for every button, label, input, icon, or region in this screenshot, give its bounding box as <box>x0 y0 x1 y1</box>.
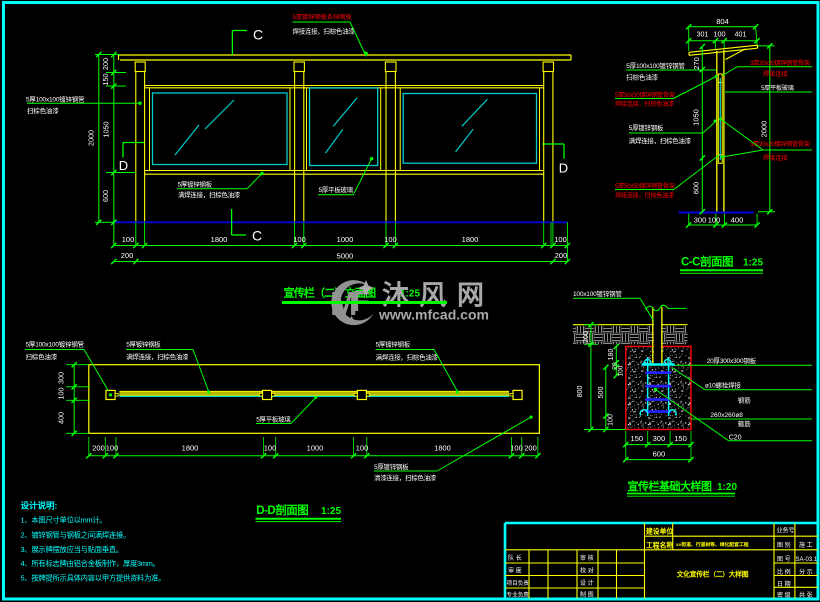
svg-text:300: 300 <box>57 372 66 384</box>
svg-text:200: 200 <box>101 58 110 70</box>
svg-text:C: C <box>252 228 262 244</box>
svg-text:5厚50x50镀锌钢管骨架: 5厚50x50镀锌钢管骨架 <box>615 91 675 99</box>
svg-text:4、所有标志牌由铝合金板制作，厚度3mm。: 4、所有标志牌由铝合金板制作，厚度3mm。 <box>21 559 160 568</box>
svg-text:100x100镀锌钢管: 100x100镀锌钢管 <box>573 289 622 298</box>
svg-text:D: D <box>119 158 128 173</box>
svg-text:150: 150 <box>674 434 687 443</box>
svg-text:5厚100x100镀锌钢管: 5厚100x100镀锌钢管 <box>626 61 685 70</box>
svg-text:100: 100 <box>510 444 523 453</box>
svg-text:180: 180 <box>608 349 615 361</box>
svg-text:满焊连接，扫棕色油漆: 满焊连接，扫棕色油漆 <box>178 190 241 199</box>
svg-text:5000: 5000 <box>337 252 354 261</box>
svg-text:钢筋: 钢筋 <box>738 395 752 404</box>
svg-text:150: 150 <box>631 434 644 443</box>
svg-text:1000: 1000 <box>337 235 354 244</box>
svg-text:200: 200 <box>555 251 568 260</box>
svg-text:5厚平板玻璃: 5厚平板玻璃 <box>319 185 354 194</box>
svg-text:SA-03.1: SA-03.1 <box>796 557 818 563</box>
svg-text:100: 100 <box>608 414 615 426</box>
svg-text:804: 804 <box>716 17 729 26</box>
svg-text:焊接连接，扫棕色油漆: 焊接连接，扫棕色油漆 <box>293 27 356 36</box>
svg-text:比 例: 比 例 <box>777 568 791 576</box>
svg-text:1:25: 1:25 <box>743 258 763 269</box>
svg-text:清漆连接，扫棕色油漆: 清漆连接，扫棕色油漆 <box>374 473 437 482</box>
svg-text:专业负责: 专业负责 <box>507 591 530 599</box>
svg-text:2000: 2000 <box>87 130 96 146</box>
svg-text:1800: 1800 <box>434 444 451 453</box>
svg-text:审 度: 审 度 <box>508 567 522 575</box>
svg-text:5厚100x100镀锌钢管: 5厚100x100镀锌钢管 <box>26 340 85 349</box>
svg-text:扫棕色油漆: 扫棕色油漆 <box>26 352 58 361</box>
svg-text:600: 600 <box>653 449 666 458</box>
svg-text:1000: 1000 <box>307 444 324 453</box>
svg-text:C-C剖面图: C-C剖面图 <box>681 255 733 269</box>
svg-text:校 对: 校 对 <box>580 567 594 575</box>
svg-text:设计说明:: 设计说明: <box>21 501 58 511</box>
svg-text:401: 401 <box>735 30 747 39</box>
svg-text:5厚镀锌钢板: 5厚镀锌钢板 <box>374 462 409 471</box>
svg-text:设 计: 设 计 <box>580 579 594 587</box>
svg-text:100: 100 <box>554 235 567 244</box>
svg-text:100: 100 <box>708 215 721 224</box>
svg-text:制 图: 制 图 <box>580 591 594 599</box>
svg-text:项目负责: 项目负责 <box>507 579 530 587</box>
svg-text:满焊连接，扫棕色油漆: 满焊连接，扫棕色油漆 <box>629 136 692 145</box>
svg-text:焊接连接，扫棕色油漆: 焊接连接，扫棕色油漆 <box>615 100 674 108</box>
svg-text:扫棕色油漆: 扫棕色油漆 <box>27 106 59 115</box>
svg-text:图 号: 图 号 <box>777 556 791 563</box>
svg-text:共 张: 共 张 <box>799 591 813 599</box>
svg-text:600: 600 <box>692 182 701 195</box>
svg-text:ø10螺栓焊接: ø10螺栓焊接 <box>705 381 742 390</box>
svg-text:5厚100x100镀锌钢管: 5厚100x100镀锌钢管 <box>26 95 85 104</box>
svg-text:200: 200 <box>92 444 105 453</box>
svg-text:3厚20x20镀锌钢管骨架: 3厚20x20镀锌钢管骨架 <box>750 59 810 67</box>
svg-text:5厚镀锌钢板: 5厚镀锌钢板 <box>376 340 411 349</box>
svg-text:270: 270 <box>692 57 701 70</box>
svg-text:扫棕色油漆: 扫棕色油漆 <box>626 73 658 82</box>
svg-text:100: 100 <box>356 444 369 453</box>
svg-text:工程名称: 工程名称 <box>646 541 673 550</box>
svg-text:C20: C20 <box>729 435 742 442</box>
svg-text:5厚平板玻璃: 5厚平板玻璃 <box>256 415 291 424</box>
svg-text:www.mfcad.com: www.mfcad.com <box>378 307 489 323</box>
svg-text:业务号: 业务号 <box>777 527 795 535</box>
svg-text:301: 301 <box>697 30 709 39</box>
svg-text:D-D剖面图: D-D剖面图 <box>256 503 308 517</box>
svg-text:满焊连接，扫棕色油漆: 满焊连接，扫棕色油漆 <box>126 352 189 361</box>
svg-text:100: 100 <box>618 365 625 376</box>
svg-text:图 别: 图 别 <box>777 541 791 549</box>
svg-text:100: 100 <box>714 30 726 39</box>
svg-text:200: 200 <box>583 331 590 343</box>
svg-text:1800: 1800 <box>182 444 199 453</box>
svg-text:200: 200 <box>121 251 134 260</box>
svg-text:100: 100 <box>264 444 277 453</box>
svg-text:100: 100 <box>122 235 135 244</box>
svg-text:150: 150 <box>101 74 110 86</box>
svg-text:焊接连接，扫棕色油漆: 焊接连接，扫棕色油漆 <box>615 192 674 200</box>
svg-text:200: 200 <box>524 444 537 453</box>
svg-text:xx街道、行道树等、绿化配套工程: xx街道、行道树等、绿化配套工程 <box>676 541 749 548</box>
svg-text:20厚300x300钢板: 20厚300x300钢板 <box>707 356 757 365</box>
svg-text:500: 500 <box>598 387 605 399</box>
svg-text:建设单位: 建设单位 <box>645 527 673 536</box>
svg-text:5厚平板玻璃: 5厚平板玻璃 <box>761 84 794 92</box>
svg-text:C: C <box>253 27 263 43</box>
svg-text:5厚镀锌钢板: 5厚镀锌钢板 <box>126 340 161 349</box>
svg-text:焊接连接: 焊接连接 <box>763 154 788 162</box>
svg-text:100: 100 <box>106 444 119 453</box>
svg-text:日 期: 日 期 <box>777 580 791 588</box>
svg-text:100: 100 <box>293 235 306 244</box>
svg-text:5厚50x50镀锌钢管骨架: 5厚50x50镀锌钢管骨架 <box>615 182 675 190</box>
svg-text:5厚镀锌钢板: 5厚镀锌钢板 <box>629 123 664 132</box>
svg-text:施 工: 施 工 <box>799 541 813 549</box>
svg-text:260x260ø8: 260x260ø8 <box>710 412 743 419</box>
svg-text:宣传栏基础大样图: 宣传栏基础大样图 <box>628 479 712 493</box>
svg-text:队 长: 队 长 <box>508 554 522 562</box>
svg-text:300: 300 <box>653 434 666 443</box>
svg-text:100: 100 <box>57 388 66 400</box>
svg-text:1800: 1800 <box>211 235 228 244</box>
svg-text:1800: 1800 <box>462 235 479 244</box>
svg-text:分 示: 分 示 <box>799 568 813 576</box>
svg-text:300: 300 <box>694 215 707 224</box>
svg-text:1、本图尺寸单位以mm计。: 1、本图尺寸单位以mm计。 <box>21 516 107 525</box>
svg-text:5厚镀锌钢板: 5厚镀锌钢板 <box>178 180 213 189</box>
svg-text:文化宣传栏（二）大样图: 文化宣传栏（二）大样图 <box>676 570 749 579</box>
svg-text:2000: 2000 <box>760 121 769 138</box>
svg-text:2、镀锌钢管与钢板之间满焊连接。: 2、镀锌钢管与钢板之间满焊连接。 <box>21 531 131 540</box>
svg-text:800: 800 <box>577 386 584 398</box>
svg-text:100: 100 <box>384 235 397 244</box>
svg-text:审 核: 审 核 <box>580 554 594 562</box>
svg-text:3、展示牌摆放应当与贴面垂直。: 3、展示牌摆放应当与贴面垂直。 <box>21 545 123 554</box>
svg-text:密 级: 密 级 <box>777 591 791 599</box>
svg-text:600: 600 <box>101 190 110 202</box>
svg-text:满焊连接，扫棕色油漆: 满焊连接，扫棕色油漆 <box>376 353 439 362</box>
svg-text:5厚镀锌钢板条挡雨板: 5厚镀锌钢板条挡雨板 <box>293 13 352 21</box>
svg-text:1:25: 1:25 <box>321 506 341 517</box>
svg-text:D: D <box>559 161 568 176</box>
svg-text:5、按牌提所示具体内容以甲方提供资料为准。: 5、按牌提所示具体内容以甲方提供资料为准。 <box>21 573 166 582</box>
svg-text:1050: 1050 <box>102 122 111 138</box>
svg-text:1:20: 1:20 <box>717 482 737 493</box>
svg-text:400: 400 <box>731 215 744 224</box>
svg-text:焊接连接: 焊接连接 <box>763 70 788 78</box>
svg-text:箍筋: 箍筋 <box>738 419 752 428</box>
svg-text:400: 400 <box>57 412 66 424</box>
svg-text:1050: 1050 <box>692 109 701 126</box>
